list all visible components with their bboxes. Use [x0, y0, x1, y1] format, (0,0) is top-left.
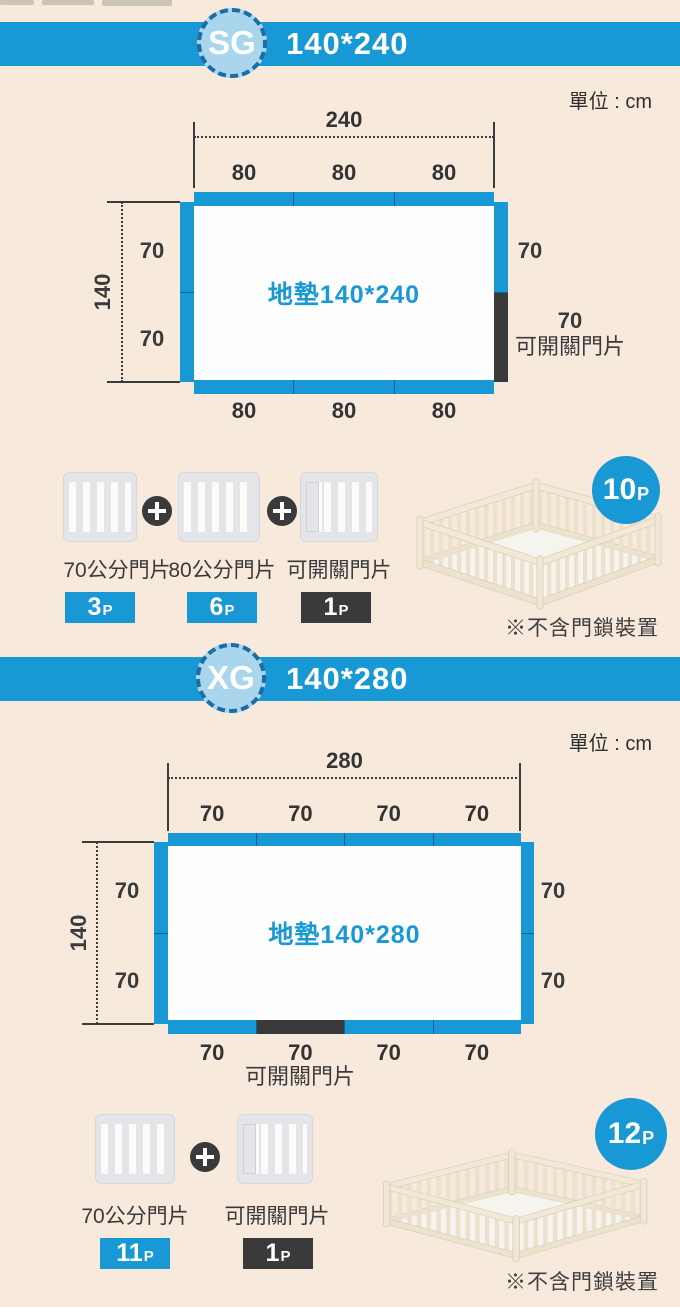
- xg-size-title: 140*280: [286, 657, 536, 701]
- part-label: 可開關門片: [202, 1200, 352, 1230]
- playpen-spec-infographic: SG 140*240 單位 : cm 240 80 80 80 地墊140*24…: [0, 0, 680, 1307]
- segment-label: 70: [531, 878, 575, 904]
- plus-icon: [267, 496, 297, 526]
- sg-bottom-wall: [194, 380, 494, 394]
- total-count: 12: [608, 1117, 641, 1151]
- xg-door-note: 可開關門片: [230, 1064, 370, 1090]
- door-hinge: [243, 1124, 259, 1174]
- xg-height-tick-bottom: [82, 1023, 154, 1025]
- segment-label: 70: [433, 801, 521, 827]
- segment-label: 70: [168, 1040, 256, 1066]
- sg-model-label: SG: [208, 24, 256, 62]
- segment-label: 70: [531, 968, 575, 994]
- count-number: 3: [88, 593, 102, 622]
- part-label: 可開關門片: [264, 554, 414, 584]
- count-badge: 6P: [187, 592, 257, 623]
- wall-segment: [154, 842, 168, 933]
- sg-door-label: 可開關門片: [500, 334, 640, 360]
- door-hinge: [306, 482, 322, 532]
- total-suffix: P: [637, 484, 649, 505]
- fence-slats: [69, 482, 131, 532]
- sg-total-badge: 10P: [592, 456, 660, 524]
- wall-segment: [194, 380, 293, 394]
- count-number: 6: [210, 593, 224, 622]
- segment-label: 80: [194, 398, 294, 424]
- count-number: 1: [266, 1239, 280, 1268]
- segment-label: 70: [256, 1040, 344, 1066]
- fence-slats: [324, 482, 372, 532]
- sg-door-value: 70: [500, 308, 640, 334]
- xg-floor-mat: 地墊140*280: [168, 846, 521, 1020]
- xg-mat-label: 地墊140*280: [268, 915, 420, 951]
- wall-segment: [344, 833, 433, 846]
- sg-mat-label: 地墊140*240: [268, 275, 420, 311]
- xg-model-badge: XG: [196, 643, 266, 713]
- count-badge: 3P: [65, 592, 135, 623]
- sg-height-tick-top: [107, 201, 180, 203]
- wall-segment: [180, 202, 194, 292]
- xg-top-segment-labels: 70 70 70 70: [168, 801, 521, 827]
- count-number: 1: [324, 593, 338, 622]
- sg-height-total: 140: [83, 267, 123, 317]
- segment-label: 80: [394, 398, 494, 424]
- xg-width-total: 280: [168, 748, 521, 774]
- wall-segment: [433, 833, 522, 846]
- segment-label: 80: [194, 160, 294, 186]
- sg-size-title: 140*240: [286, 22, 536, 66]
- panel-70cm-icon: [95, 1114, 175, 1184]
- plus-icon: [190, 1142, 220, 1172]
- wall-segment: [394, 192, 494, 206]
- wall-segment: [154, 933, 168, 1025]
- sg-door-note: 70 可開關門片: [500, 308, 640, 360]
- sg-bottom-segment-labels: 80 80 80: [194, 398, 494, 424]
- sg-height-tick-bottom: [107, 381, 180, 383]
- segment-label: 70: [345, 801, 433, 827]
- total-count: 10: [603, 473, 636, 507]
- segment-label: 80: [394, 160, 494, 186]
- part-label: 70公分門片: [60, 1200, 210, 1230]
- segment-label: 70: [168, 801, 256, 827]
- wall-segment: [344, 1020, 433, 1034]
- xg-left-wall: [154, 842, 168, 1024]
- count-badge: 11P: [100, 1238, 170, 1269]
- segment-label: 80: [294, 160, 394, 186]
- xg-height-total: 140: [59, 908, 99, 958]
- panel-80cm-icon: [178, 472, 260, 542]
- xg-model-label: XG: [207, 659, 255, 697]
- count-badge: 1P: [243, 1238, 313, 1269]
- xg-door-label: 可開關門片: [230, 1064, 370, 1090]
- segment-label: 70: [105, 878, 149, 904]
- cropped-top-text: [0, 0, 190, 7]
- xg-total-badge: 12P: [595, 1098, 667, 1170]
- xg-lock-note: ※不含門鎖裝置: [505, 1266, 659, 1296]
- sg-model-badge: SG: [197, 8, 267, 78]
- segment-label: 70: [433, 1040, 521, 1066]
- sg-left-wall: [180, 202, 194, 382]
- fence-slats: [261, 1124, 307, 1174]
- segment-label: 70: [256, 801, 344, 827]
- count-suffix: P: [224, 602, 234, 619]
- sg-floor-mat: 地墊140*240: [194, 206, 494, 380]
- fence-slats: [101, 1124, 169, 1174]
- segment-label: 70: [105, 968, 149, 994]
- segment-label: 70: [130, 238, 174, 264]
- xg-bottom-segment-labels: 70 70 70 70: [168, 1040, 521, 1066]
- count-number: 11: [116, 1239, 142, 1268]
- sg-unit-label: 單位 : cm: [569, 85, 652, 114]
- wall-segment: [180, 292, 194, 383]
- door-panel-icon: [300, 472, 378, 542]
- panel-70cm-icon: [63, 472, 137, 542]
- segment-label: 80: [294, 398, 394, 424]
- door-panel-icon: [237, 1114, 313, 1184]
- wall-segment: [394, 380, 494, 394]
- wall-segment: [194, 192, 293, 206]
- wall-segment: [293, 192, 393, 206]
- count-badge: 1P: [301, 592, 371, 623]
- xg-right-wall: [521, 842, 534, 1024]
- cropped-text-fragment: [0, 0, 34, 5]
- fence-slats: [184, 482, 254, 532]
- count-suffix: P: [280, 1248, 290, 1265]
- segment-label: 70: [345, 1040, 433, 1066]
- sg-top-segment-labels: 80 80 80: [194, 160, 494, 186]
- sg-top-wall: [194, 192, 494, 206]
- wall-segment: [293, 380, 393, 394]
- xg-unit-label: 單位 : cm: [569, 727, 652, 756]
- sg-right-upper-label: 70: [508, 238, 552, 264]
- sg-width-dim-line: [194, 136, 494, 138]
- wall-segment: [256, 833, 345, 846]
- wall-segment: [494, 202, 508, 292]
- sg-lock-note: ※不含門鎖裝置: [505, 612, 659, 642]
- count-suffix: P: [338, 602, 348, 619]
- xg-width-dim-line: [168, 777, 521, 779]
- cropped-text-fragment: [42, 0, 94, 5]
- sg-width-total: 240: [194, 107, 494, 133]
- wall-segment: [168, 1020, 256, 1034]
- count-suffix: P: [102, 602, 112, 619]
- total-suffix: P: [642, 1128, 654, 1149]
- count-suffix: P: [144, 1248, 154, 1265]
- wall-segment: [168, 833, 256, 846]
- door-wall-segment: [256, 1020, 345, 1034]
- xg-bottom-wall: [168, 1020, 521, 1034]
- xg-top-wall: [168, 833, 521, 846]
- xg-height-tick-top: [82, 841, 154, 843]
- plus-icon: [142, 496, 172, 526]
- cropped-text-fragment: [102, 0, 172, 6]
- wall-segment: [433, 1020, 522, 1034]
- segment-label: 70: [130, 326, 174, 352]
